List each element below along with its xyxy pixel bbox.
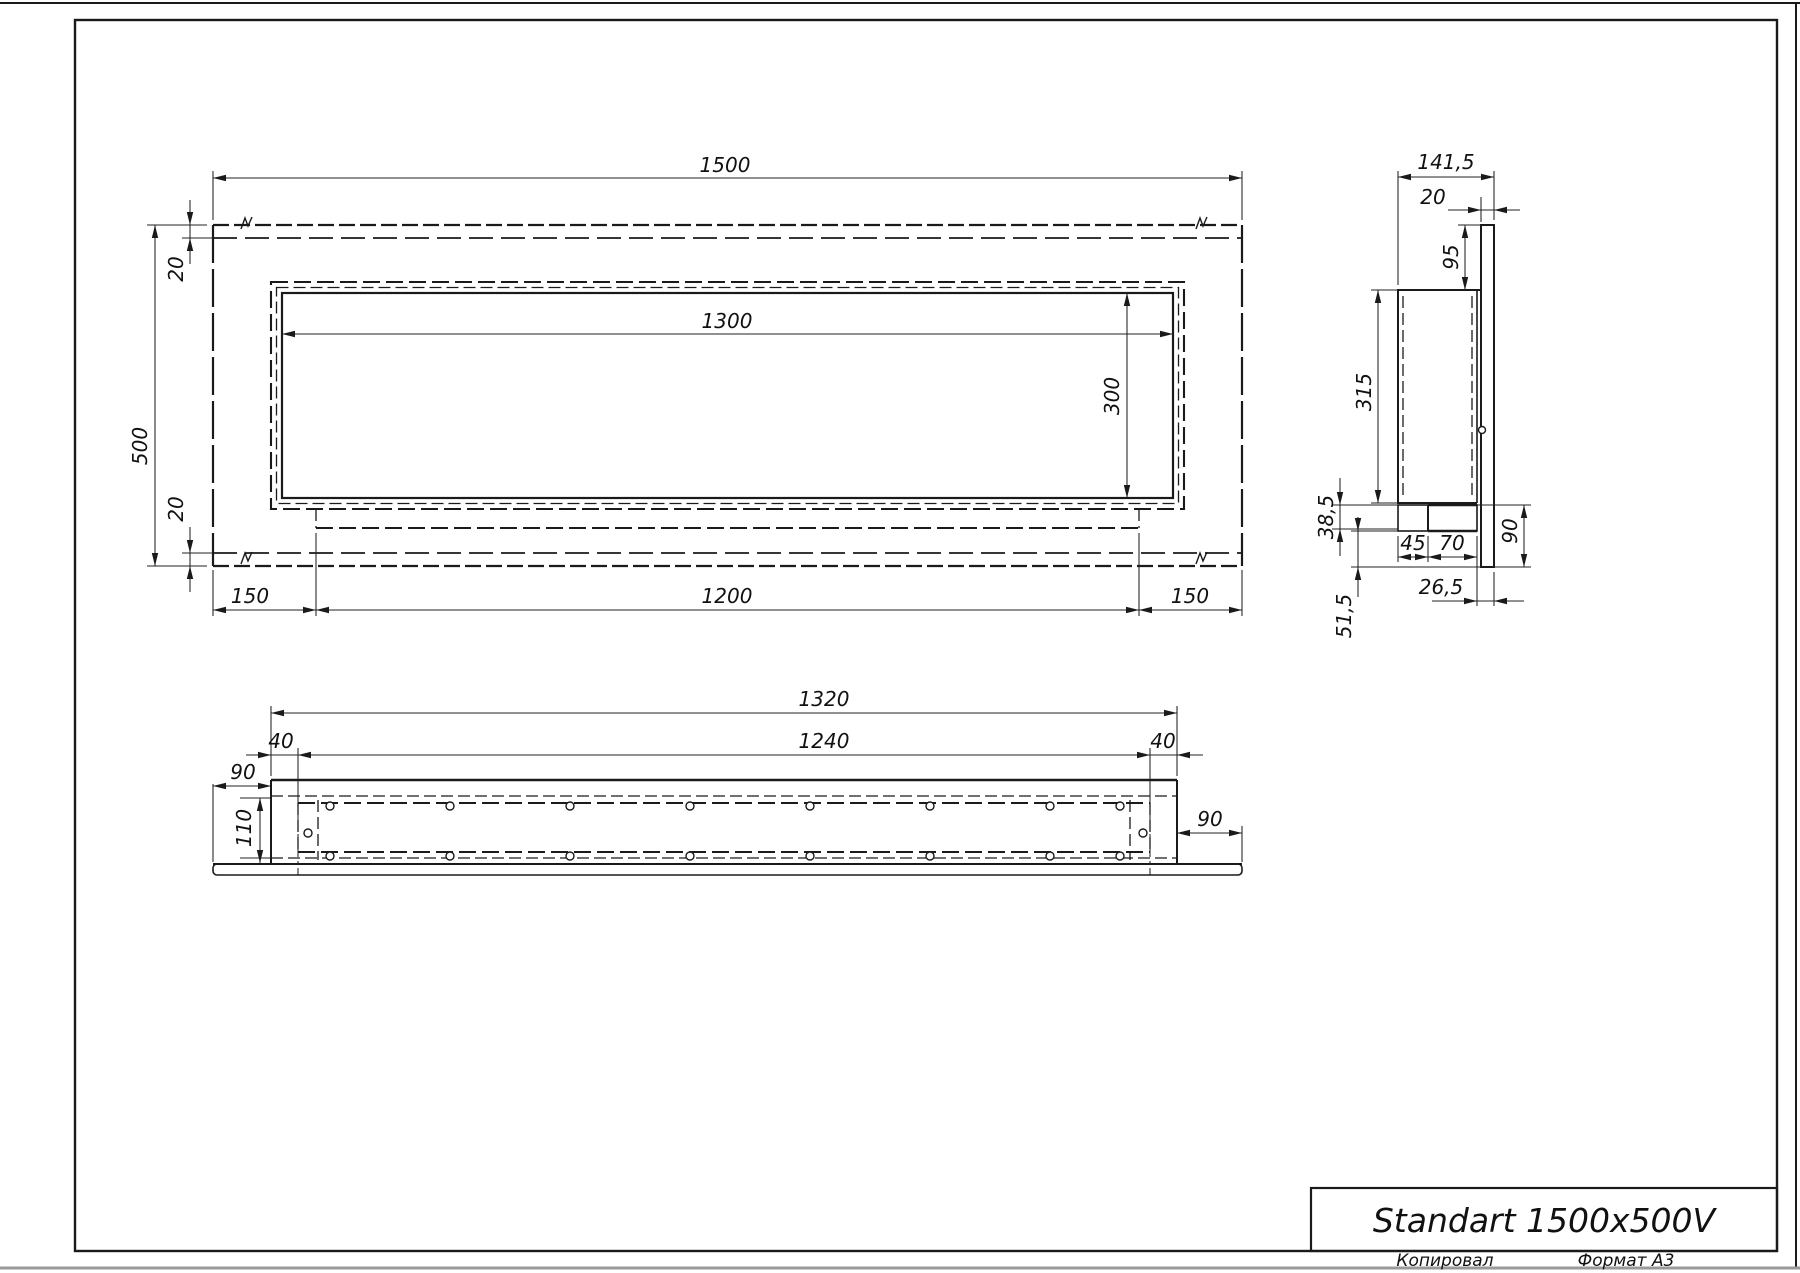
dim-side-lip-offset: 26,5 xyxy=(1419,575,1464,599)
bottom-flange xyxy=(213,864,1242,875)
dim-bottom-right-inset: 40 xyxy=(1150,729,1175,753)
side-plate-hole xyxy=(1479,427,1486,434)
dim-bottom-opening-length: 1240 xyxy=(799,729,850,753)
dim-side-front-lip: 90 xyxy=(1498,518,1522,543)
seam-mark xyxy=(1196,217,1207,229)
bottom-view: 1320 1240 40 40 90 90 110 xyxy=(213,687,1242,875)
bottom-view-dimensions: 1320 1240 40 40 90 90 110 xyxy=(213,687,1242,863)
dim-front-left-offset: 150 xyxy=(231,584,269,608)
side-view-dimensions: 141,5 20 95 315 38,5 45 70 90 26,5 51,5 xyxy=(1314,150,1531,638)
bottom-hidden-opening-ends xyxy=(298,803,1150,852)
dim-front-overall-width: 1500 xyxy=(700,153,751,177)
side-front-plate xyxy=(1481,225,1494,567)
dim-bottom-left-inset: 40 xyxy=(268,729,293,753)
dim-front-burner-length: 1200 xyxy=(702,584,753,608)
dim-bottom-depth: 110 xyxy=(232,809,256,847)
dim-side-tray-drop: 38,5 xyxy=(1314,495,1338,540)
dim-front-right-offset: 150 xyxy=(1171,584,1209,608)
dim-side-overall-depth: 141,5 xyxy=(1417,150,1474,174)
dim-side-tray-front: 45 xyxy=(1400,531,1425,555)
front-view: 1500 500 20 20 1300 300 150 1200 150 xyxy=(128,153,1242,616)
dim-front-opening-width: 1300 xyxy=(702,309,753,333)
dim-side-body-height: 315 xyxy=(1352,373,1376,411)
bottom-hidden-opening xyxy=(298,803,1150,852)
dim-front-bottom-margin: 20 xyxy=(164,496,188,521)
dim-bottom-right-flange: 90 xyxy=(1197,807,1222,831)
sheet-frame xyxy=(0,3,1800,1268)
dim-side-front-plate: 20 xyxy=(1420,185,1445,209)
dim-bottom-left-flange: 90 xyxy=(230,760,255,784)
side-view: 141,5 20 95 315 38,5 45 70 90 26,5 51,5 xyxy=(1314,150,1531,638)
dim-side-bottom-drop: 51,5 xyxy=(1332,594,1356,639)
copied-label: Копировал xyxy=(1396,1251,1493,1271)
title-block: Standart 1500x500V Копировал Формат А3 xyxy=(1311,1188,1777,1271)
dim-bottom-body-length: 1320 xyxy=(799,687,850,711)
drawing-frame xyxy=(75,20,1777,1251)
front-view-dimensions: 1500 500 20 20 1300 300 150 1200 150 xyxy=(128,153,1242,616)
product-title: Standart 1500x500V xyxy=(1373,1201,1718,1240)
format-label: Формат А3 xyxy=(1578,1251,1675,1271)
dim-side-top-reveal: 95 xyxy=(1439,244,1463,269)
side-body-outline xyxy=(1398,290,1481,503)
drawing-canvas: 1500 500 20 20 1300 300 150 1200 150 xyxy=(0,0,1800,1273)
drawing-sheet: 1500 500 20 20 1300 300 150 1200 150 xyxy=(0,0,1800,1273)
dim-front-opening-height: 300 xyxy=(1100,377,1124,415)
seam-mark xyxy=(241,217,252,229)
side-tray xyxy=(1398,505,1477,531)
dim-front-top-margin: 20 xyxy=(164,256,188,281)
side-tray-channel xyxy=(1428,505,1477,531)
dim-side-tray-back: 70 xyxy=(1439,531,1464,555)
dim-front-overall-height: 500 xyxy=(128,427,152,465)
